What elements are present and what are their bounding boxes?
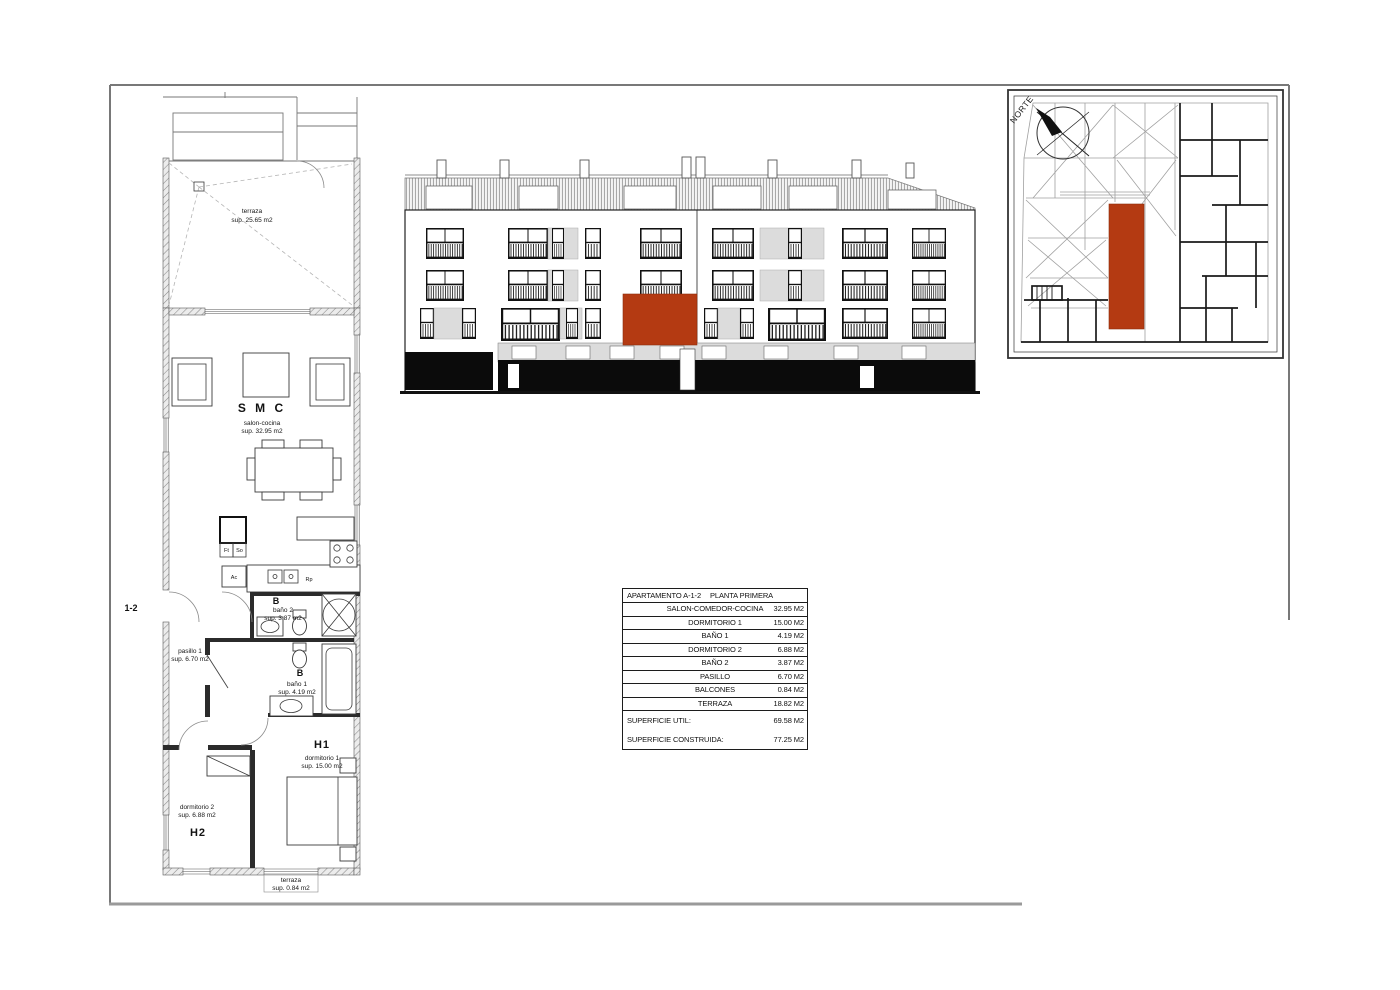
total-value: 69.58 M2 xyxy=(774,711,804,730)
terrace-bottom: terraza sup. 0.84 m2 xyxy=(264,875,318,892)
bath1-code: B xyxy=(297,668,304,678)
building-elevation xyxy=(400,157,980,394)
table-title-floor: PLANTA PRIMERA xyxy=(710,591,773,600)
bath2-label: baño 2 xyxy=(273,607,293,614)
table-total-row: SUPERFICIE UTIL:69.58 M2 xyxy=(623,711,807,730)
row-value: 15.00 M2 xyxy=(774,617,804,630)
row-value: 0.84 M2 xyxy=(778,684,804,697)
row-value: 18.82 M2 xyxy=(774,698,804,711)
bedroom-1: H1 dormitorio 1 sup. 15.00 m2 xyxy=(207,739,357,861)
kitchen-rp-label: Rp xyxy=(305,577,312,583)
living-room-area: sup. 32.95 m2 xyxy=(241,428,283,435)
bath2-code: B xyxy=(273,596,280,606)
total-label: SUPERFICIE UTIL: xyxy=(623,716,691,725)
bedroom2-area: sup. 6.88 m2 xyxy=(178,812,216,819)
terrace-area: terraza sup. 25.65 m2 xyxy=(169,161,352,305)
living-room-code: S M C xyxy=(238,401,286,415)
bedroom2-label: dormitorio 2 xyxy=(180,804,215,811)
kitchen-ft-label: Ft xyxy=(224,548,229,554)
bath1-area: sup. 4.19 m2 xyxy=(278,689,316,696)
table-total-row: SUPERFICIE CONSTRUIDA:77.25 M2 xyxy=(623,730,807,749)
row-value: 6.88 M2 xyxy=(778,644,804,657)
pergola-structure xyxy=(163,92,357,193)
table-row: PASILLO6.70 M2 xyxy=(623,671,807,685)
hall-label: pasillo 1 xyxy=(178,648,202,655)
bedroom1-code: H1 xyxy=(314,739,330,751)
bath2-area: sup. 3.87 m2 xyxy=(264,615,302,622)
areas-table-header: APARTAMENTO A-1-2 PLANTA PRIMERA xyxy=(623,589,807,603)
table-title-apartment: APARTAMENTO A-1-2 xyxy=(627,591,701,600)
table-row: BALCONES0.84 M2 xyxy=(623,684,807,698)
bedroom2-code: H2 xyxy=(190,827,206,839)
terrace-top-area: sup. 25.65 m2 xyxy=(231,217,273,224)
bedroom1-label: dormitorio 1 xyxy=(305,755,340,762)
table-row: DORMITORIO 26.88 M2 xyxy=(623,644,807,658)
terrace-bottom-label: terraza xyxy=(281,877,302,884)
table-row: TERRAZA18.82 M2 xyxy=(623,698,807,712)
drawing-sheet: terraza sup. 25.65 m2 S M C salon-cocina… xyxy=(0,0,1400,990)
bathroom-1: B baño 1 sup. 4.19 m2 xyxy=(270,643,356,716)
key-plan: NORTE xyxy=(1008,90,1283,358)
kitchen-ac-label: Ac xyxy=(231,575,238,581)
table-row: BAÑO 14.19 M2 xyxy=(623,630,807,644)
areas-table: APARTAMENTO A-1-2 PLANTA PRIMERA SALON-C… xyxy=(622,588,808,750)
highlighted-unit-elevation xyxy=(623,294,697,345)
row-value: 32.95 M2 xyxy=(774,603,804,616)
table-row: DORMITORIO 115.00 M2 xyxy=(623,617,807,631)
terrace-bottom-area: sup. 0.84 m2 xyxy=(272,885,310,892)
table-row: SALON-COMEDOR-COCINA32.95 M2 xyxy=(623,603,807,617)
table-row: BAÑO 23.87 M2 xyxy=(623,657,807,671)
row-value: 4.19 M2 xyxy=(778,630,804,643)
bath1-label: baño 1 xyxy=(287,681,307,688)
kitchen-so-label: So xyxy=(236,548,243,554)
row-value: 6.70 M2 xyxy=(778,671,804,684)
bedroom1-area: sup. 15.00 m2 xyxy=(301,763,343,770)
architectural-drawing: terraza sup. 25.65 m2 S M C salon-cocina… xyxy=(0,0,1400,990)
bedroom-2: dormitorio 2 sup. 6.88 m2 H2 xyxy=(178,804,216,839)
highlighted-unit-keyplan xyxy=(1109,204,1144,329)
entrance-code: 1-2 xyxy=(124,603,137,613)
kitchen: Ft So Ac Rp xyxy=(220,517,360,592)
terrace-top-label: terraza xyxy=(242,208,263,215)
living-room-label: salon-cocina xyxy=(244,420,281,427)
living-room: S M C salon-cocina sup. 32.95 m2 xyxy=(172,353,350,500)
hall-area: sup. 6.70 m2 xyxy=(171,656,209,663)
bathroom-2: B baño 2 sup. 3.87 m2 xyxy=(257,594,356,636)
total-label: SUPERFICIE CONSTRUIDA: xyxy=(623,735,724,744)
total-value: 77.25 M2 xyxy=(774,730,804,749)
row-value: 3.87 M2 xyxy=(778,657,804,670)
apartment-floor-plan: terraza sup. 25.65 m2 S M C salon-cocina… xyxy=(124,92,360,892)
